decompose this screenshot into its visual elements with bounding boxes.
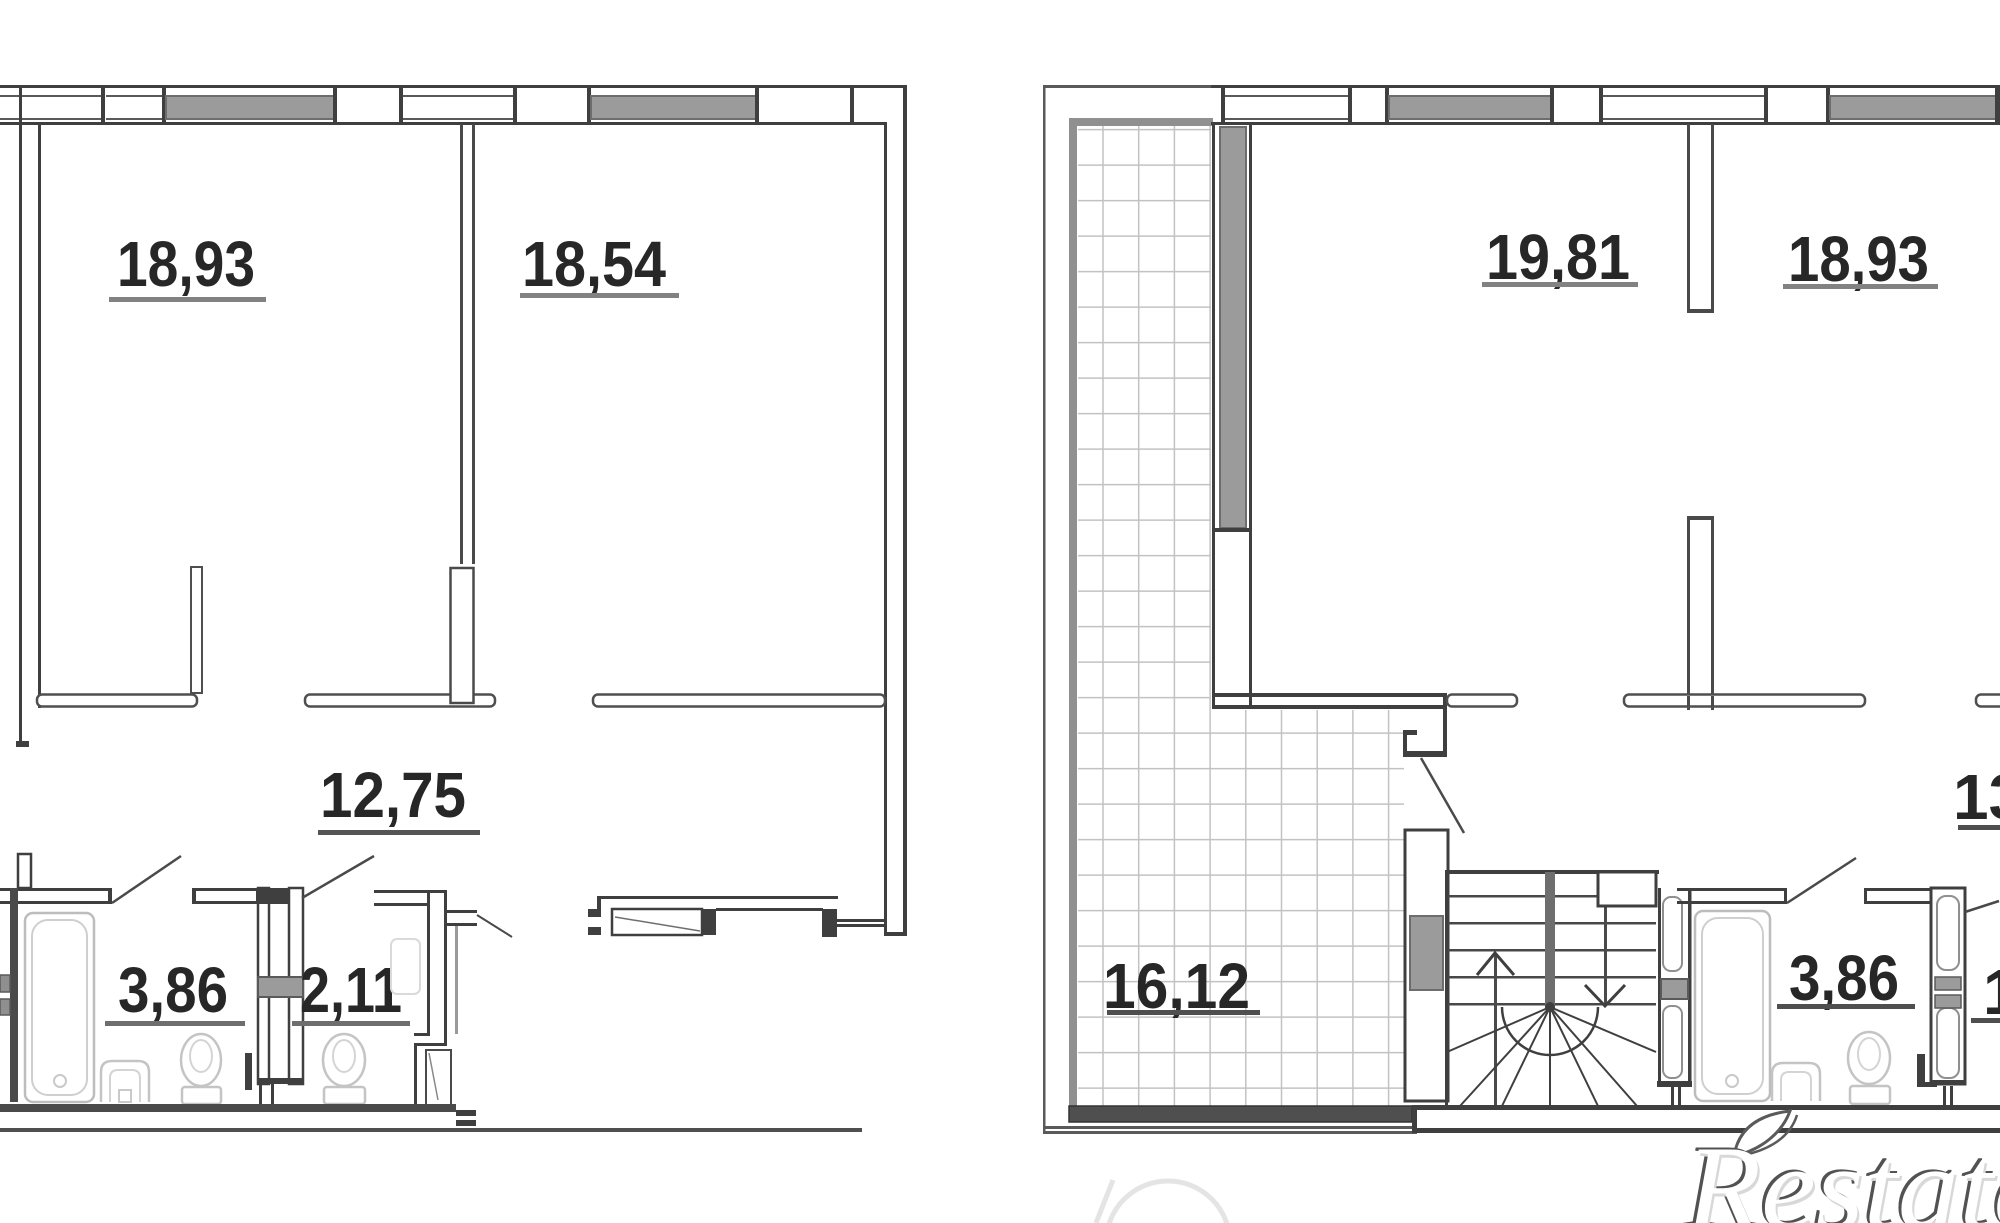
svg-text:Restate: Restate [1685,1121,2000,1223]
svg-text:12,75: 12,75 [320,759,466,831]
svg-text:3,86: 3,86 [118,954,228,1026]
svg-text:1,: 1, [1983,956,2000,1028]
svg-text:13,: 13, [1953,761,2000,833]
svg-text:18,93: 18,93 [117,228,255,300]
svg-text:3,86: 3,86 [1789,942,1899,1014]
svg-text:18,54: 18,54 [522,228,666,300]
svg-text:2,11: 2,11 [300,954,402,1026]
